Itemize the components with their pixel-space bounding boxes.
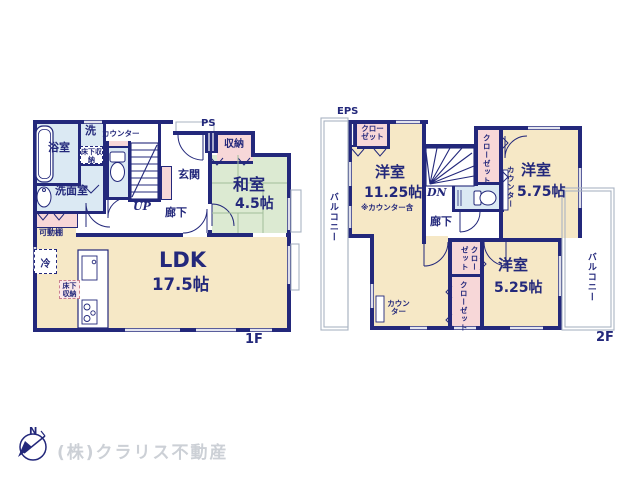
wall <box>426 144 478 148</box>
wall <box>76 233 291 237</box>
wall <box>452 182 455 212</box>
wall <box>287 153 291 332</box>
label-balcony-left: バルコニー <box>327 192 337 258</box>
label-bedroom1-note: ※カウンター含 <box>361 204 413 212</box>
wall <box>387 122 390 148</box>
label-eps: EPS <box>337 106 358 117</box>
label-ps: PS <box>201 118 216 129</box>
label-bedroom2-size: 5.75帖 <box>517 185 566 200</box>
label-counter-desk: カウンター <box>386 300 411 317</box>
wall <box>251 153 291 157</box>
compass-north-label: N <box>29 426 37 437</box>
wall <box>251 131 255 155</box>
label-floor-1f: 1F <box>245 333 263 347</box>
label-closet-lower: クローゼット <box>459 281 467 327</box>
label-bedroom1-name: 洋室 <box>375 164 405 181</box>
underfloor-storage-kitchen: 床下収納 <box>59 280 80 299</box>
wall <box>370 234 374 330</box>
company-name: (株)クラリス不動産 <box>57 438 229 463</box>
wall <box>33 120 37 332</box>
shoe-cabinet <box>161 166 172 200</box>
fridge-space: 冷 <box>34 249 57 274</box>
wall <box>212 161 253 164</box>
label-bedroom1-size: 11.25帖 <box>364 186 422 201</box>
label-bath: 浴室 <box>48 142 70 154</box>
label-laundry: 洗 <box>85 125 96 137</box>
compass-icon <box>18 431 46 460</box>
label-washitsu-size: 4.5帖 <box>235 197 274 212</box>
label-hallway-2f: 廊下 <box>430 216 452 228</box>
label-counter-mid: カウンター <box>506 166 514 212</box>
label-ldk-name: LDK <box>159 249 206 272</box>
wall <box>448 238 452 330</box>
label-bedroom2-name: 洋室 <box>521 162 551 179</box>
label-hallway-1f: 廊下 <box>165 207 187 219</box>
label-up: UP <box>133 201 151 213</box>
room-ldk-left <box>35 228 76 328</box>
label-washroom: 洗面室 <box>55 185 88 197</box>
label-dn: DN <box>427 187 447 199</box>
wall <box>448 238 562 242</box>
wall <box>452 209 504 212</box>
floorplan-canvas: N 冷 床下収納 床下収納 浴室 洗 洗面室 カウンター 可動棚 PS 収納 玄… <box>0 0 640 480</box>
wall <box>499 126 503 238</box>
label-storage: 収納 <box>224 139 244 150</box>
wall <box>474 130 478 186</box>
label-washitsu-name: 和室 <box>233 176 265 194</box>
eps-shaft <box>348 122 357 147</box>
label-closet-upper: クローゼット <box>454 243 479 274</box>
wall <box>106 146 131 148</box>
movable-shelf-strip <box>35 213 78 228</box>
stairs-up <box>131 143 158 199</box>
wall <box>578 126 582 238</box>
label-closet-topleft: クローゼット <box>358 125 387 142</box>
room-washitsu <box>212 155 287 233</box>
label-floor-2f: 2F <box>596 331 614 345</box>
stairs-down <box>426 148 474 186</box>
label-closet-mid: クローゼット <box>482 134 490 184</box>
wall <box>33 211 106 214</box>
wall <box>558 238 562 330</box>
label-ldk-size: 17.5帖 <box>152 276 209 294</box>
wall <box>422 120 426 244</box>
ps-shaft <box>205 131 218 153</box>
label-entrance: 玄関 <box>178 169 200 181</box>
wall <box>357 146 390 149</box>
label-counter-1f: カウンター <box>102 130 140 138</box>
room-toilet-2f <box>455 184 499 209</box>
wall <box>474 126 582 130</box>
wall <box>158 120 161 202</box>
wall <box>452 274 480 277</box>
label-movable-shelf: 可動棚 <box>39 229 63 238</box>
label-balcony-right: バルコニー <box>585 252 595 318</box>
wall <box>452 182 506 185</box>
label-bedroom3-size: 5.25帖 <box>494 281 543 296</box>
wall <box>480 238 484 330</box>
wall <box>106 141 109 200</box>
label-bedroom3-name: 洋室 <box>498 257 528 274</box>
wall <box>128 141 131 202</box>
underfloor-storage-laundry: 床下収納 <box>80 146 103 164</box>
